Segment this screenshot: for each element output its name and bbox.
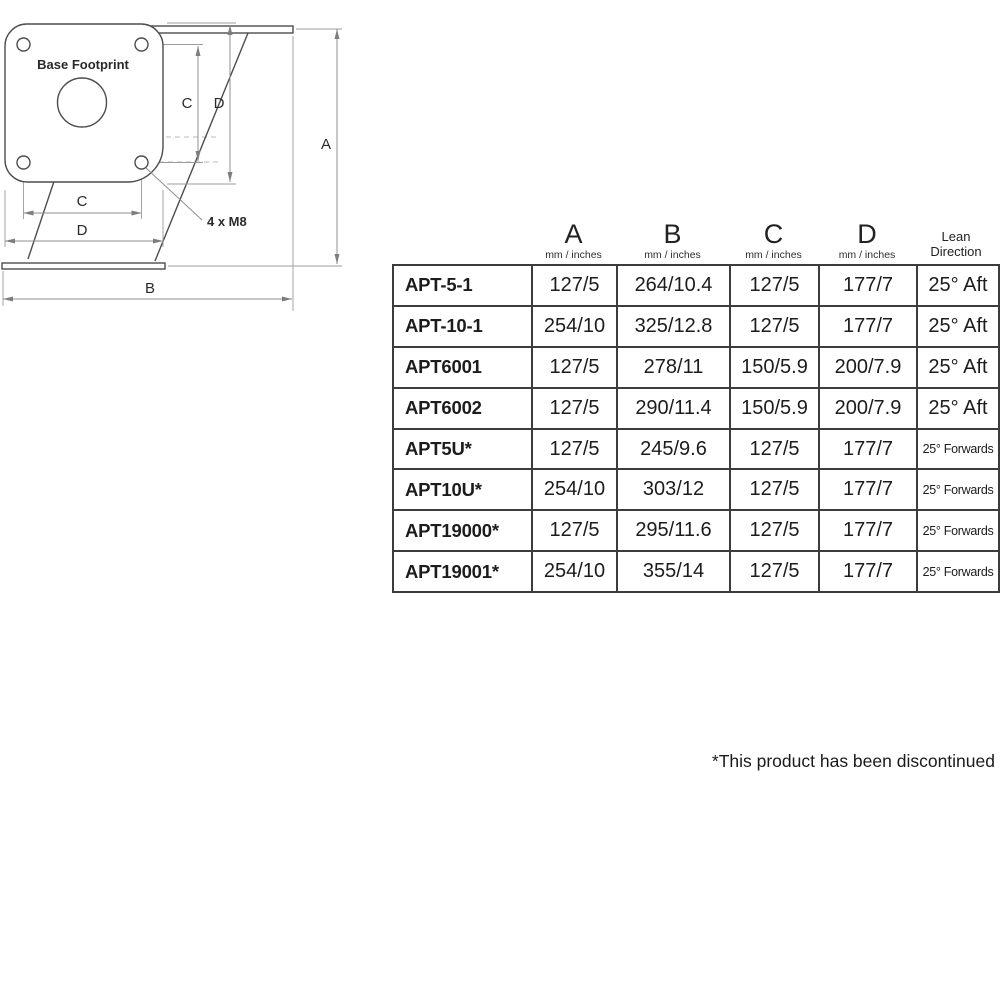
header-letter-a: A (531, 221, 616, 248)
dim-a-cell: 254/10 (532, 551, 617, 592)
bolt-leader-line (146, 168, 202, 220)
header-col-b: B mm / inches (616, 221, 729, 262)
lean-cell: 25° Aft (917, 306, 999, 347)
dim-label-b: B (145, 280, 155, 297)
header-lean-line2: Direction (916, 245, 996, 260)
dim-b-cell: 303/12 (617, 469, 730, 510)
dim-c-cell: 127/5 (730, 551, 819, 592)
bolt-hole (135, 38, 148, 51)
dim-d-cell: 177/7 (819, 551, 917, 592)
dim-c-cell: 127/5 (730, 510, 819, 551)
table-row: APT10U* 254/10 303/12 127/5 177/7 25° Fo… (393, 469, 999, 510)
header-unit-c: mm / inches (729, 248, 818, 262)
dim-a-cell: 127/5 (532, 265, 617, 306)
base-footprint-title: Base Footprint (37, 57, 129, 72)
table-row: APT19001* 254/10 355/14 127/5 177/7 25° … (393, 551, 999, 592)
bolt-hole (135, 156, 148, 169)
header-col-d: D mm / inches (818, 221, 916, 262)
dim-a-cell: 127/5 (532, 429, 617, 470)
dim-c-cell: 127/5 (730, 306, 819, 347)
dim-d-cell: 177/7 (819, 469, 917, 510)
header-col-a: A mm / inches (531, 221, 616, 262)
model-cell: APT-5-1 (393, 265, 532, 306)
dim-a-cell: 254/10 (532, 469, 617, 510)
spec-table: APT-5-1 127/5 264/10.4 127/5 177/7 25° A… (392, 264, 1000, 593)
dim-c-cell: 150/5.9 (730, 347, 819, 388)
discontinued-footnote: *This product has been discontinued (712, 751, 995, 772)
center-hole (58, 78, 107, 127)
dim-c-cell: 150/5.9 (730, 388, 819, 429)
dim-label-c-bottom: C (77, 193, 88, 210)
dim-label-d-bottom: D (77, 222, 88, 239)
model-cell: APT19000* (393, 510, 532, 551)
model-cell: APT5U* (393, 429, 532, 470)
header-unit-b: mm / inches (616, 248, 729, 262)
table-row: APT19000* 127/5 295/11.6 127/5 177/7 25°… (393, 510, 999, 551)
dim-b-cell: 264/10.4 (617, 265, 730, 306)
dim-b-cell: 355/14 (617, 551, 730, 592)
header-unit-d: mm / inches (818, 248, 916, 262)
model-cell: APT19001* (393, 551, 532, 592)
dim-b-cell: 325/12.8 (617, 306, 730, 347)
model-cell: APT10U* (393, 469, 532, 510)
spec-table-header: A mm / inches B mm / inches C mm / inche… (392, 212, 998, 262)
dim-a-cell: 254/10 (532, 306, 617, 347)
dim-label-c-right: C (182, 95, 193, 112)
lean-cell: 25° Aft (917, 265, 999, 306)
base-footprint-diagram: C D C D Base Footprint 4 x M8 (0, 0, 300, 270)
model-cell: APT6002 (393, 388, 532, 429)
lean-cell: 25° Forwards (917, 429, 999, 470)
model-cell: APT-10-1 (393, 306, 532, 347)
model-cell: APT6001 (393, 347, 532, 388)
dim-b-cell: 290/11.4 (617, 388, 730, 429)
dim-a-cell: 127/5 (532, 510, 617, 551)
header-col-c: C mm / inches (729, 221, 818, 262)
dim-c-cell: 127/5 (730, 429, 819, 470)
lean-cell: 25° Aft (917, 388, 999, 429)
bolt-hole (17, 156, 30, 169)
bolt-note: 4 x M8 (207, 214, 247, 229)
dim-d-cell: 177/7 (819, 265, 917, 306)
header-letter-d: D (818, 221, 916, 248)
dim-d-cell: 177/7 (819, 429, 917, 470)
dim-d-cell: 200/7.9 (819, 347, 917, 388)
bolt-hole (17, 38, 30, 51)
header-col-lean: Lean Direction (916, 230, 996, 262)
dim-a-cell: 127/5 (532, 347, 617, 388)
dim-c-cell: 127/5 (730, 469, 819, 510)
dim-d-cell: 177/7 (819, 510, 917, 551)
header-letter-c: C (729, 221, 818, 248)
dim-b-cell: 245/9.6 (617, 429, 730, 470)
header-letter-b: B (616, 221, 729, 248)
lean-cell: 25° Forwards (917, 551, 999, 592)
table-row: APT5U* 127/5 245/9.6 127/5 177/7 25° For… (393, 429, 999, 470)
lean-cell: 25° Aft (917, 347, 999, 388)
dim-b-cell: 295/11.6 (617, 510, 730, 551)
lean-cell: 25° Forwards (917, 510, 999, 551)
dim-c-cell: 127/5 (730, 265, 819, 306)
header-lean-line1: Lean (916, 230, 996, 245)
dim-a-cell: 127/5 (532, 388, 617, 429)
table-row: APT6002 127/5 290/11.4 150/5.9 200/7.9 2… (393, 388, 999, 429)
dim-label-a: A (321, 136, 331, 153)
header-unit-a: mm / inches (531, 248, 616, 262)
table-row: APT-10-1 254/10 325/12.8 127/5 177/7 25°… (393, 306, 999, 347)
lean-cell: 25° Forwards (917, 469, 999, 510)
dim-d-cell: 177/7 (819, 306, 917, 347)
dim-d-cell: 200/7.9 (819, 388, 917, 429)
dim-label-d-right: D (214, 95, 225, 112)
dim-b-cell: 278/11 (617, 347, 730, 388)
spec-sheet: A B C D (0, 0, 1000, 1000)
table-row: APT6001 127/5 278/11 150/5.9 200/7.9 25°… (393, 347, 999, 388)
table-row: APT-5-1 127/5 264/10.4 127/5 177/7 25° A… (393, 265, 999, 306)
